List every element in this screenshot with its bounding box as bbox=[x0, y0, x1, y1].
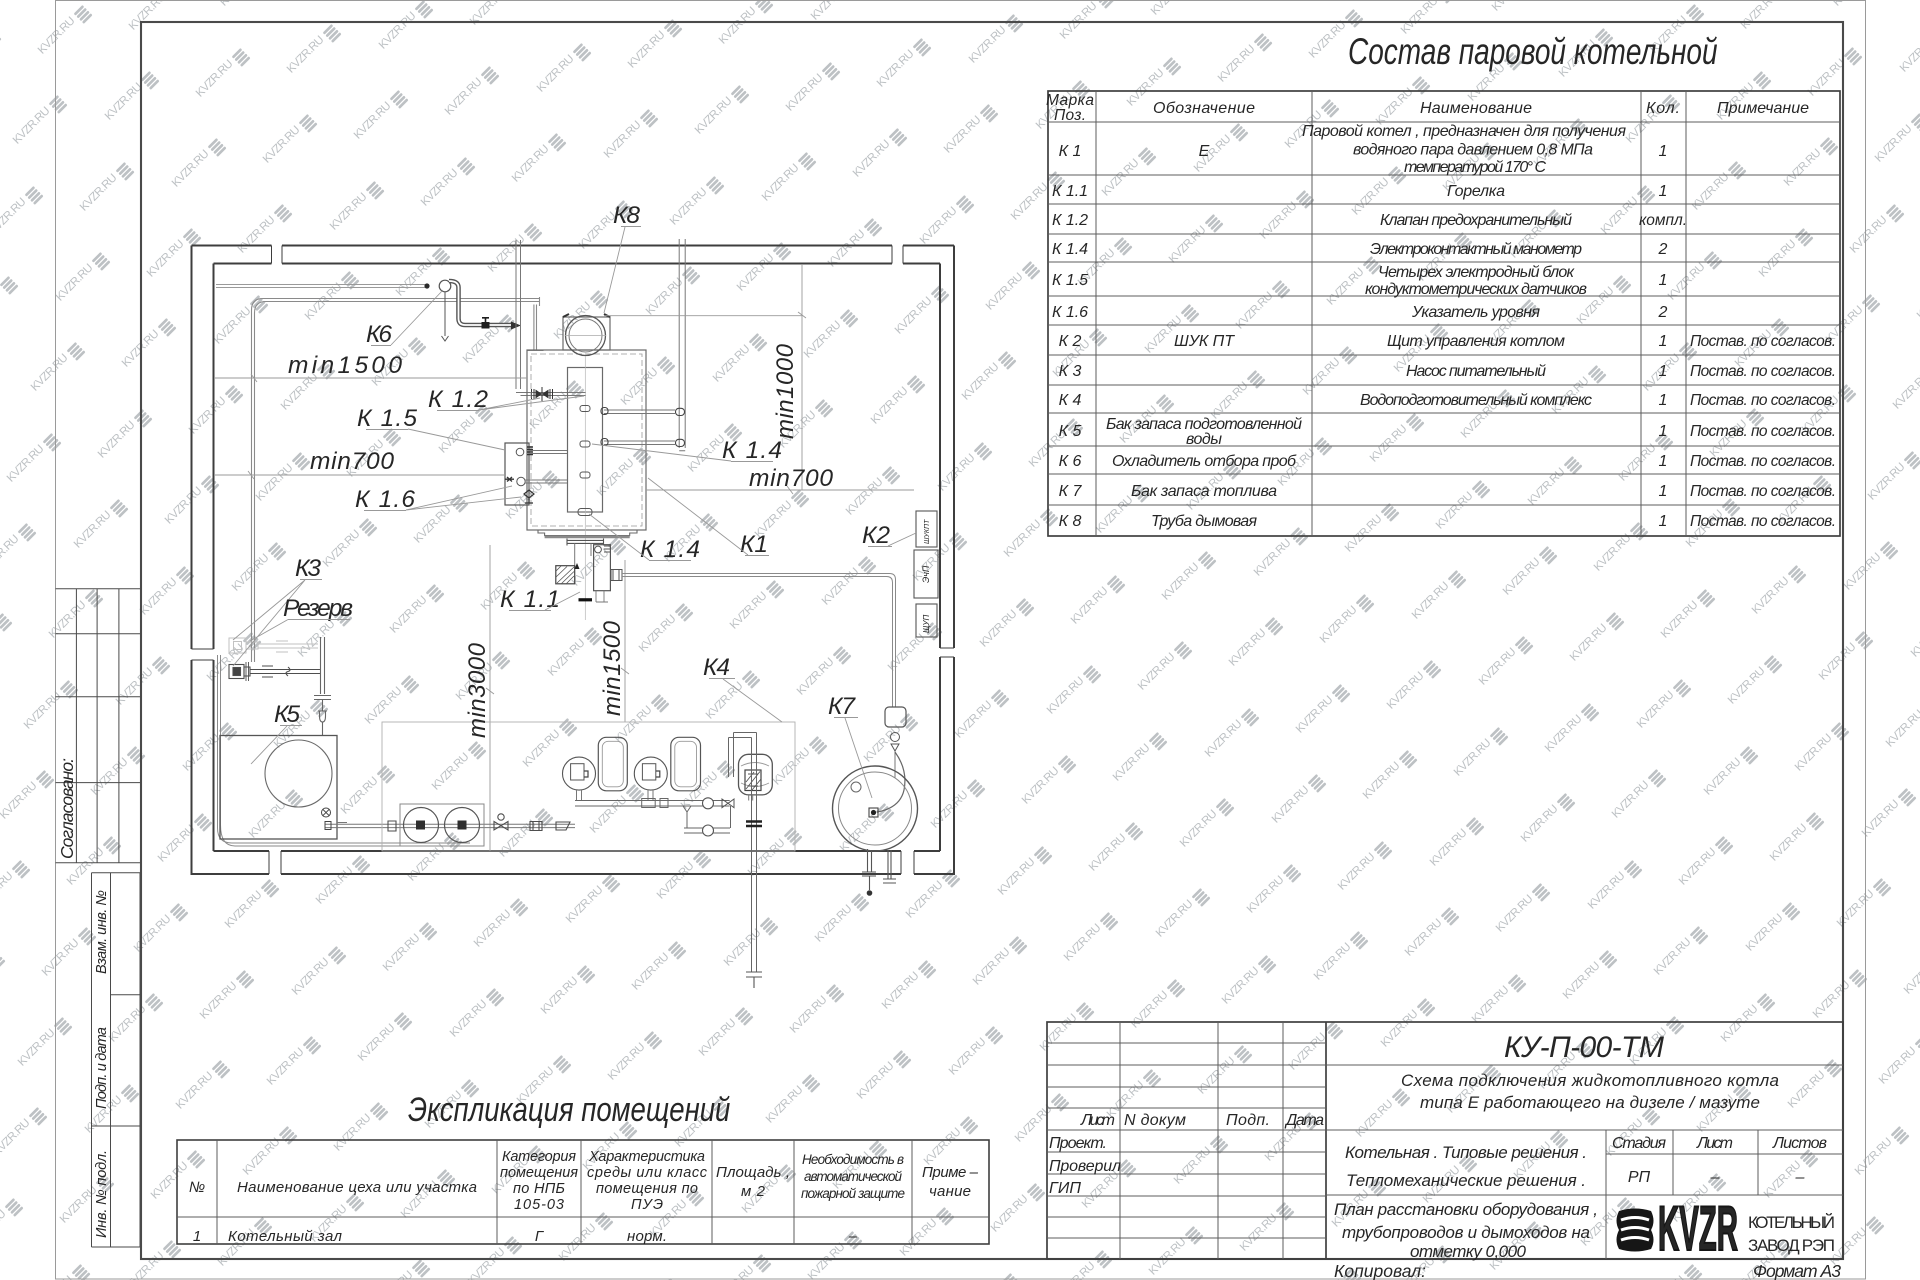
svg-text:Подп.: Подп. bbox=[1226, 1112, 1270, 1129]
svg-text:воды: воды bbox=[1186, 431, 1222, 448]
svg-text:К 1.2: К 1.2 bbox=[1052, 212, 1088, 229]
svg-text:Проект.: Проект. bbox=[1049, 1135, 1107, 1152]
svg-text:1: 1 bbox=[193, 1228, 201, 1245]
svg-text:KVZR: KVZR bbox=[1658, 1195, 1738, 1264]
svg-text:Труба дымовая: Труба дымовая bbox=[1151, 513, 1257, 530]
svg-text:1: 1 bbox=[1659, 363, 1668, 380]
svg-text:Насос питательный: Насос питательный bbox=[1406, 363, 1546, 380]
svg-text:Водоподготовительный комплекс: Водоподготовительный комплекс bbox=[1360, 392, 1592, 409]
svg-text:К 1: К 1 bbox=[1059, 143, 1082, 160]
svg-text:Формат А3: Формат А3 bbox=[1753, 1261, 1841, 1280]
svg-text:К 4: К 4 bbox=[703, 654, 730, 681]
svg-text:Паровой котел , предназначен д: Паровой котел , предназначен для получен… bbox=[1302, 123, 1626, 140]
svg-text:Постав. по согласов.: Постав. по согласов. bbox=[1690, 392, 1836, 409]
svg-text:Четырех электродный блок: Четырех электродный блок bbox=[1378, 264, 1575, 281]
svg-text:КОТЕЛЬНЫЙ: КОТЕЛЬНЫЙ bbox=[1748, 1213, 1835, 1232]
svg-text:1: 1 bbox=[1659, 272, 1668, 289]
svg-text:норм.: норм. bbox=[627, 1228, 667, 1245]
svg-text:К 1.1: К 1.1 bbox=[500, 586, 560, 613]
svg-text:Дата: Дата bbox=[1284, 1112, 1324, 1129]
svg-text:min3000: min3000 bbox=[464, 642, 491, 738]
svg-text:отметку 0,000: отметку 0,000 bbox=[1410, 1242, 1527, 1261]
svg-text:К 2: К 2 bbox=[862, 522, 890, 549]
svg-text:Экспликация помещений: Экспликация помещений bbox=[408, 1090, 730, 1128]
svg-text:помещения: помещения bbox=[500, 1165, 578, 1181]
svg-text:1: 1 bbox=[1659, 483, 1668, 500]
svg-text:Приме –: Приме – bbox=[922, 1164, 979, 1181]
svg-text:ЭчП: ЭчП bbox=[921, 565, 931, 583]
svg-text:Тепломеханические решения .: Тепломеханические решения . bbox=[1346, 1171, 1586, 1190]
svg-text:Резерв: Резерв bbox=[283, 595, 353, 622]
svg-text:min700: min700 bbox=[749, 465, 833, 492]
svg-text:трубопроводов и дымоходов на: трубопроводов и дымоходов на bbox=[1342, 1223, 1590, 1242]
svg-text:Поз.: Поз. bbox=[1054, 107, 1086, 124]
svg-text:Подп. и дата: Подп. и дата bbox=[94, 1027, 110, 1109]
svg-text:1: 1 bbox=[1659, 453, 1668, 470]
svg-text:К 8: К 8 bbox=[1059, 513, 1082, 530]
svg-text:–: – bbox=[1710, 1169, 1720, 1186]
svg-text:Бак запаса топлива: Бак запаса топлива bbox=[1131, 483, 1277, 500]
svg-text:Охладитель отбора проб: Охладитель отбора проб bbox=[1112, 453, 1297, 470]
svg-text:водяного пара давлением 0,8: водяного пара давлением 0,8 МПа bbox=[1353, 142, 1593, 159]
svg-text:К 1.2: К 1.2 bbox=[428, 386, 488, 413]
svg-text:ПУЭ: ПУЭ bbox=[631, 1197, 663, 1213]
svg-text:К 4: К 4 bbox=[1059, 392, 1082, 409]
svg-text:Листов: Листов bbox=[1772, 1135, 1827, 1152]
svg-text:Постав. по согласов.: Постав. по согласов. bbox=[1690, 483, 1836, 500]
svg-text:N докум: N докум bbox=[1124, 1112, 1186, 1129]
svg-text:Кол.: Кол. bbox=[1646, 100, 1680, 117]
svg-text:Примечание: Примечание bbox=[1717, 100, 1809, 117]
svg-text:ГИП: ГИП bbox=[1049, 1180, 1081, 1197]
svg-text:Состав паровой котельной: Состав паровой котельной bbox=[1348, 30, 1718, 72]
svg-text:1: 1 bbox=[1659, 143, 1668, 160]
svg-text:кондуктометрических датчиков: кондуктометрических датчиков bbox=[1365, 281, 1587, 298]
svg-text:К 3: К 3 bbox=[295, 555, 321, 582]
svg-text:Инв. № подл.: Инв. № подл. bbox=[94, 1150, 110, 1238]
svg-text:Щит управления котлом: Щит управления котлом bbox=[1387, 333, 1565, 350]
svg-text:Площадь ,: Площадь , bbox=[716, 1164, 790, 1181]
svg-text:Клапан предохранительный: Клапан предохранительный bbox=[1380, 212, 1572, 229]
svg-text:К 1.6: К 1.6 bbox=[1052, 304, 1088, 321]
svg-text:К 3: К 3 bbox=[1059, 363, 1082, 380]
svg-text:Лист: Лист bbox=[1080, 1112, 1115, 1129]
svg-text:2: 2 bbox=[1658, 304, 1668, 321]
svg-text:К 7: К 7 bbox=[828, 693, 856, 720]
svg-text:Постав. по согласов.: Постав. по согласов. bbox=[1690, 363, 1836, 380]
svg-text:Электроконтактный манометр: Электроконтактный манометр bbox=[1370, 241, 1582, 258]
svg-text:К 2: К 2 bbox=[1059, 333, 1082, 350]
svg-text:min1000: min1000 bbox=[772, 343, 799, 439]
svg-text:РП: РП bbox=[1628, 1169, 1651, 1186]
svg-text:К 6: К 6 bbox=[1059, 453, 1082, 470]
svg-text:ШУК ПТ: ШУК ПТ bbox=[1174, 333, 1235, 350]
svg-text:компл.: компл. bbox=[1639, 212, 1687, 229]
svg-text:min1500: min1500 bbox=[599, 620, 626, 716]
svg-text:Постав. по согласов.: Постав. по согласов. bbox=[1690, 513, 1836, 530]
svg-text:Горелка: Горелка bbox=[1447, 183, 1505, 200]
svg-text:К 1.4: К 1.4 bbox=[640, 536, 700, 563]
svg-text:К 1.4: К 1.4 bbox=[1052, 241, 1088, 258]
svg-text:температурой 170° С: температурой 170° С bbox=[1404, 159, 1546, 176]
svg-text:К 1.6: К 1.6 bbox=[355, 486, 415, 513]
svg-text:–: – bbox=[848, 1228, 858, 1245]
svg-text:Необходимость в: Необходимость в bbox=[802, 1152, 904, 1167]
svg-text:КУ-П-00-ТМ: КУ-П-00-ТМ bbox=[1504, 1031, 1664, 1064]
svg-text:1: 1 bbox=[1659, 333, 1668, 350]
svg-text:К 1.5: К 1.5 bbox=[1052, 272, 1088, 289]
svg-text:К 1.4: К 1.4 bbox=[722, 437, 782, 464]
svg-text:Копировал:: Копировал: bbox=[1334, 1261, 1426, 1280]
svg-text:пожарной защите: пожарной защите bbox=[801, 1186, 905, 1201]
svg-text:Наименование: Наименование bbox=[1420, 100, 1532, 117]
svg-text:К 5: К 5 bbox=[1059, 423, 1082, 440]
svg-text:Категория: Категория bbox=[502, 1149, 576, 1165]
svg-text:Постав. по согласов.: Постав. по согласов. bbox=[1690, 423, 1836, 440]
svg-text:Обозначение: Обозначение bbox=[1153, 100, 1255, 117]
svg-text:К 8: К 8 bbox=[613, 202, 640, 229]
svg-text:Стадия: Стадия bbox=[1612, 1135, 1666, 1152]
svg-text:по НПБ: по НПБ bbox=[513, 1181, 565, 1197]
svg-text:К 5: К 5 bbox=[274, 701, 300, 728]
svg-text:Согласовано:: Согласовано: bbox=[57, 758, 77, 859]
svg-text:К 1.5: К 1.5 bbox=[357, 405, 417, 432]
svg-text:м 2: м 2 bbox=[741, 1183, 766, 1200]
svg-text:План расстановки оборудования: План расстановки оборудования , bbox=[1334, 1200, 1598, 1219]
svg-text:min700: min700 bbox=[310, 448, 394, 475]
svg-text:Указатель уровня: Указатель уровня bbox=[1411, 304, 1540, 321]
svg-text:ШУКПТ: ШУКПТ bbox=[924, 519, 931, 544]
svg-text:Характеристика: Характеристика bbox=[588, 1149, 705, 1165]
svg-text:Постав. по согласов.: Постав. по согласов. bbox=[1690, 453, 1836, 470]
svg-text:автоматической: автоматической bbox=[804, 1169, 902, 1184]
svg-text:Наименование цеха или участка: Наименование цеха или участка bbox=[237, 1179, 477, 1196]
svg-text:Проверил: Проверил bbox=[1049, 1158, 1121, 1175]
svg-text:среды или класс: среды или класс bbox=[587, 1165, 708, 1181]
svg-text:1: 1 bbox=[1659, 183, 1668, 200]
svg-text:Лист: Лист bbox=[1696, 1135, 1733, 1152]
svg-text:1: 1 bbox=[1659, 423, 1668, 440]
svg-text:К 6: К 6 bbox=[366, 321, 392, 348]
svg-text:–: – bbox=[1795, 1169, 1805, 1186]
svg-text:Котельный зал: Котельный зал bbox=[228, 1228, 343, 1245]
svg-text:К 1: К 1 bbox=[740, 531, 768, 558]
svg-text:Постав. по согласов.: Постав. по согласов. bbox=[1690, 333, 1836, 350]
svg-text:Схема подключения жидкотопливн: Схема подключения жидкотопливного котла bbox=[1401, 1071, 1779, 1090]
svg-text:1: 1 bbox=[1659, 392, 1668, 409]
svg-text:Взам. инв. №: Взам. инв. № bbox=[94, 890, 110, 974]
svg-text:Е: Е bbox=[1199, 143, 1210, 160]
svg-text:ЩУП: ЩУП bbox=[922, 615, 931, 633]
svg-text:К 1.1: К 1.1 bbox=[1052, 183, 1088, 200]
svg-text:К 7: К 7 bbox=[1059, 483, 1083, 500]
svg-text:2: 2 bbox=[1658, 241, 1668, 258]
svg-text:Котельная . Типовые решения .: Котельная . Типовые решения . bbox=[1345, 1143, 1587, 1162]
svg-text:чание: чание bbox=[929, 1183, 971, 1200]
svg-text:типа Е работающего на дизеле /: типа Е работающего на дизеле / мазуте bbox=[1420, 1093, 1760, 1112]
svg-text:помещения по: помещения по bbox=[596, 1181, 698, 1197]
svg-text:105-03: 105-03 bbox=[514, 1197, 564, 1213]
svg-text:ЗАВОД РЭП: ЗАВОД РЭП bbox=[1748, 1236, 1835, 1255]
svg-text:1: 1 bbox=[1659, 513, 1668, 530]
svg-text:№: № bbox=[189, 1179, 205, 1196]
